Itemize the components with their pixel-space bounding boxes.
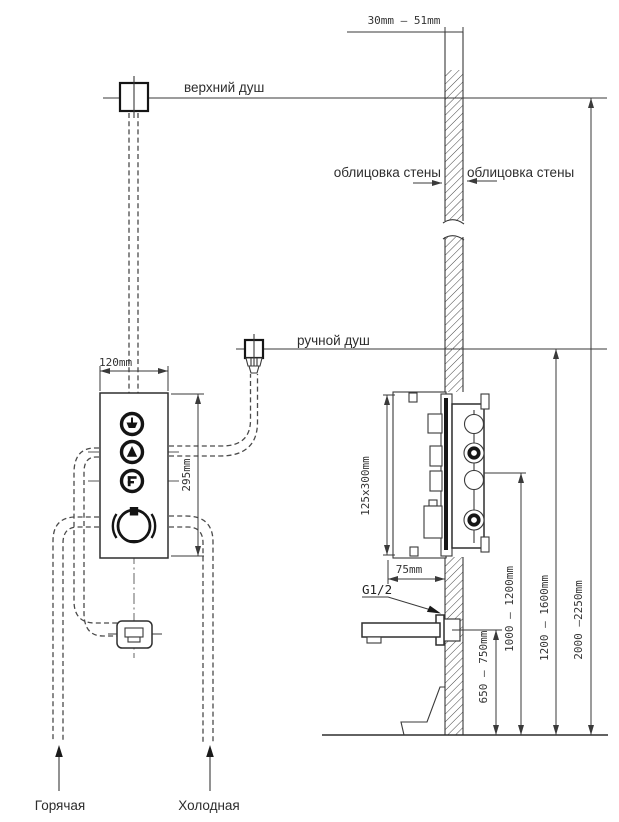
- dim-box-depth-text: 75mm: [396, 563, 423, 576]
- wall-cladding-right-text: облицовка стены: [467, 165, 574, 180]
- hand-shower-hose-2: [169, 374, 258, 456]
- hot-pipe: [53, 517, 99, 742]
- top-shower-label: верхний душ: [184, 80, 264, 95]
- dim-hand-shower-height-text: 1200 – 1600mm: [538, 575, 551, 661]
- cold-supply-label: Холодная: [178, 798, 239, 813]
- shower-panel: [100, 393, 168, 558]
- front-view: 120mm 295mm Горячая Холодная: [35, 76, 263, 813]
- dim-panel-width: 120mm: [99, 356, 168, 391]
- dim-box-depth: 75mm: [388, 560, 445, 584]
- thread-callout: G1/2: [362, 582, 441, 614]
- wall-cladding-right: облицовка стены: [467, 165, 574, 181]
- overhead-shower: [120, 76, 148, 118]
- dim-wall-thickness: 30mm – 51mm: [347, 14, 463, 37]
- wall-break: [441, 220, 467, 240]
- button-hand-shower[interactable]: [122, 442, 143, 463]
- button-spout[interactable]: [122, 471, 143, 492]
- dim-panel-height: 295mm: [171, 394, 204, 556]
- installation-diagram-page: 30mm – 51mm облицовка стены облицовка ст…: [0, 0, 619, 822]
- hand-shower-label: ручной душ: [297, 333, 370, 348]
- side-view: 30mm – 51mm облицовка стены облицовка ст…: [103, 14, 608, 735]
- hot-supply: Горячая: [35, 745, 85, 813]
- hand-shower-device: [245, 334, 263, 373]
- dim-hand-shower-height: 1200 – 1600mm: [538, 349, 556, 735]
- mixer-box-side: [393, 392, 489, 558]
- dial-marker: [130, 507, 138, 516]
- hot-arrow: [55, 745, 63, 757]
- dim-outlet-height-text: 1000 – 1200mm: [503, 566, 516, 652]
- dim-panel-height-text: 295mm: [180, 458, 193, 491]
- cold-pipe: [169, 516, 213, 742]
- dim-outlet-height: 1000 – 1200mm: [484, 473, 526, 735]
- dim-top-shower-height: 2000 –2250mm: [572, 98, 591, 735]
- hand-shower-hose: [169, 374, 251, 446]
- wall-cladding-left: облицовка стены: [334, 165, 442, 183]
- cold-supply: Холодная: [178, 745, 239, 813]
- dim-spout-height-text: 650 – 750mm: [477, 630, 490, 703]
- mixer-top-tab: [481, 394, 489, 409]
- dim-wall-thickness-text: 30mm – 51mm: [368, 14, 441, 27]
- dim-box-size-text: 125x300mm: [359, 456, 372, 516]
- spout-side: [362, 615, 460, 645]
- hot-supply-label: Горячая: [35, 798, 85, 813]
- thread-label: G1/2: [362, 582, 392, 597]
- dim-box-size: 125x300mm: [359, 395, 395, 555]
- dim-panel-width-text: 120mm: [99, 356, 132, 369]
- installation-diagram: 30mm – 51mm облицовка стены облицовка ст…: [0, 0, 619, 822]
- dim-top-shower-height-text: 2000 –2250mm: [572, 580, 585, 660]
- skirting-profile: [401, 687, 445, 735]
- thread-arrowhead: [427, 606, 441, 614]
- cold-pipe-2: [169, 527, 203, 742]
- spout-outlet-front: [108, 621, 162, 648]
- mixer-bottom-tab: [481, 537, 489, 552]
- cold-arrow: [206, 745, 214, 757]
- wall-cladding-left-text: облицовка стены: [334, 165, 441, 180]
- button-overhead-shower[interactable]: [122, 414, 143, 435]
